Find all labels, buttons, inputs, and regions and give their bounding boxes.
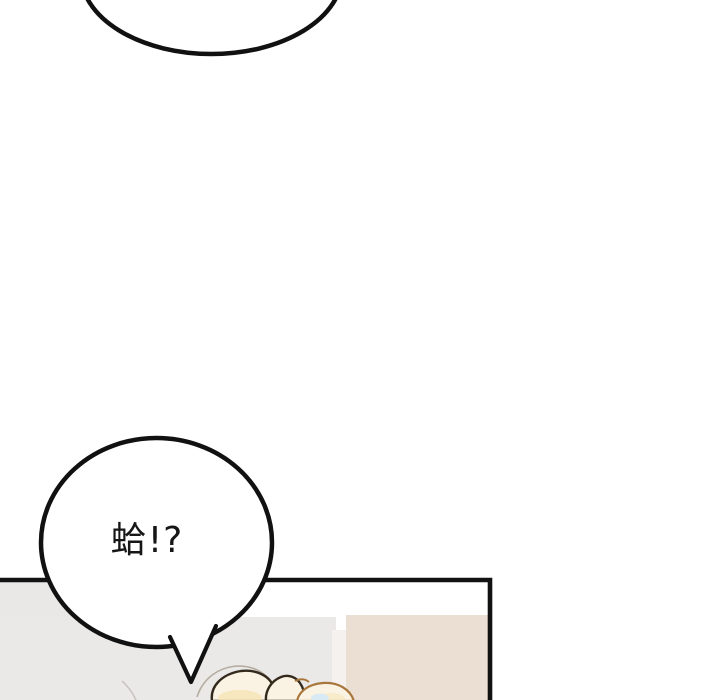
panel-wall-beige — [346, 615, 488, 700]
comic-artwork — [0, 0, 720, 700]
speech-text: 蛤!? — [111, 523, 184, 559]
speech-bubble-top-partial — [81, 0, 342, 54]
comic-page: 蛤!? — [0, 0, 720, 700]
